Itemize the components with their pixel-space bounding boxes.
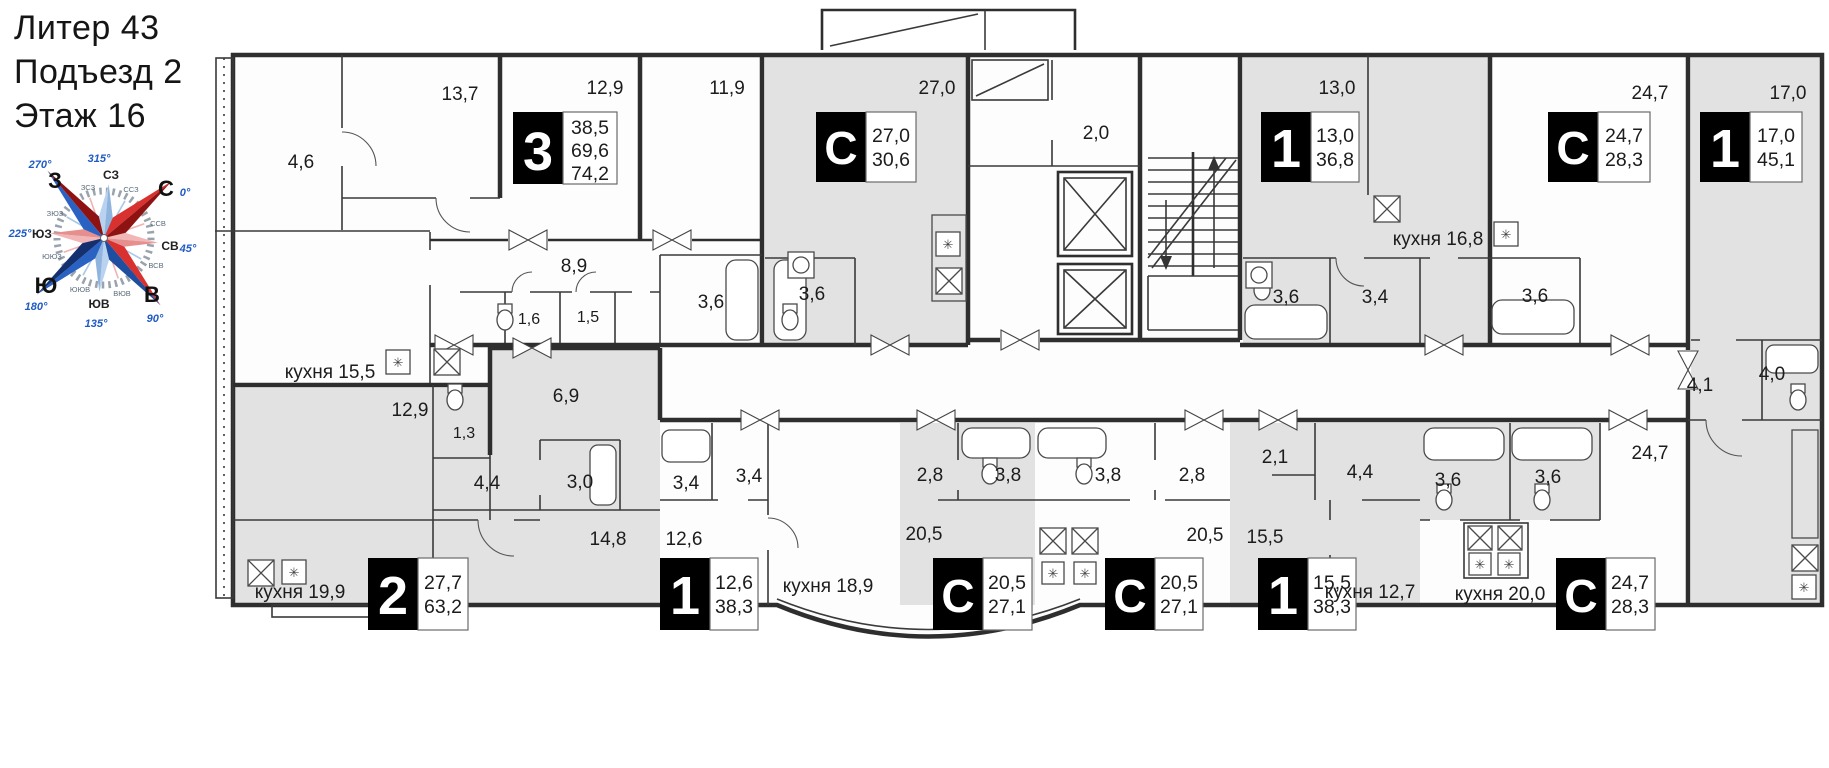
room-label: 2,0	[1083, 123, 1109, 144]
svg-text:✳: ✳	[1080, 566, 1091, 581]
svg-text:24,7: 24,7	[1605, 125, 1643, 147]
apartment-badge-studio2: С 24,7 28,3	[1548, 112, 1650, 182]
compass-nnw: ССЗ	[123, 185, 139, 194]
room-label: 3,6	[698, 292, 724, 313]
room-label: 4,0	[1759, 364, 1785, 385]
svg-text:17,0: 17,0	[1757, 125, 1795, 147]
apartment-badge-1room-bl: 1 12,6 38,3	[660, 558, 758, 630]
svg-text:27,1: 27,1	[988, 596, 1026, 618]
room-label: 14,8	[590, 529, 627, 550]
room-label: 4,4	[474, 473, 501, 494]
room-label: 4,6	[288, 152, 314, 173]
compass-nw-label: СЗ	[103, 168, 119, 182]
compass-south-label: Ю	[35, 273, 58, 298]
svg-text:45,1: 45,1	[1757, 149, 1795, 171]
svg-text:36,8: 36,8	[1316, 149, 1354, 171]
room-label: 2,1	[1262, 447, 1288, 468]
svg-text:1: 1	[1271, 119, 1301, 179]
svg-text:1: 1	[1268, 566, 1298, 626]
apartment-badge-3room: 3 38,5 69,6 74,2	[513, 112, 617, 185]
room-label: 3,6	[1522, 286, 1548, 307]
room-label: 3,6	[1535, 467, 1561, 488]
compass-deg135: 135°	[85, 318, 108, 330]
room-label: 12,9	[587, 78, 624, 99]
svg-text:2: 2	[378, 566, 408, 626]
svg-text:1: 1	[670, 566, 700, 626]
svg-text:28,3: 28,3	[1605, 149, 1643, 171]
svg-text:С: С	[1556, 122, 1589, 174]
svg-text:С: С	[1564, 570, 1597, 622]
svg-text:27,0: 27,0	[872, 125, 910, 147]
compass-deg225: 225°	[8, 228, 32, 240]
svg-text:✳: ✳	[289, 565, 300, 580]
compass-deg180: 180°	[25, 301, 48, 313]
svg-text:✳: ✳	[1475, 557, 1486, 572]
svg-text:38,5: 38,5	[571, 117, 609, 139]
room-label: кухня 12,7	[1325, 582, 1416, 603]
room-label: 3,8	[995, 465, 1021, 486]
svg-text:20,5: 20,5	[1160, 572, 1198, 594]
svg-text:С: С	[1113, 570, 1146, 622]
room-label: 8,9	[561, 256, 587, 277]
room-label: 1,3	[453, 425, 475, 442]
svg-text:63,2: 63,2	[424, 596, 462, 618]
room-label: 24,7	[1632, 83, 1669, 104]
room-label: 3,6	[1435, 470, 1461, 491]
room-label: 1,5	[577, 309, 599, 326]
floor-plan-page: Литер 43 Подъезд 2 Этаж 16	[0, 0, 1829, 768]
room-label: 3,6	[799, 284, 825, 305]
room-label: 3,4	[673, 473, 700, 494]
room-label: 2,8	[917, 465, 943, 486]
room-label: 11,9	[709, 78, 745, 99]
compass-ene: ВСВ	[148, 261, 163, 270]
svg-text:12,6: 12,6	[715, 572, 753, 594]
apartment-badge-1room-top: 1 13,0 36,8	[1261, 112, 1359, 182]
room-label: 12,9	[392, 400, 429, 421]
svg-text:1: 1	[1710, 119, 1740, 179]
svg-text:✳: ✳	[1501, 227, 1512, 242]
room-label: 13,0	[1319, 78, 1356, 99]
room-label: кухня 20,0	[1455, 584, 1546, 605]
svg-text:27,7: 27,7	[424, 572, 462, 594]
room-label: 13,7	[442, 84, 479, 105]
room-label: 17,0	[1770, 83, 1807, 104]
compass-sw-label: ЮЗ	[32, 227, 52, 241]
room-label: кухня 18,9	[783, 576, 874, 597]
compass-deg90: 90°	[147, 313, 164, 325]
compass-deg45: 45°	[179, 243, 197, 255]
compass-deg315: 315°	[88, 153, 111, 165]
floor-plan-drawing: С В Ю З СВ ЮВ ЮЗ СЗ 0° 45° 90° 135° 180°…	[0, 0, 1829, 768]
compass-se-label: ЮВ	[88, 297, 109, 311]
svg-text:27,1: 27,1	[1160, 596, 1198, 618]
svg-text:13,0: 13,0	[1316, 125, 1354, 147]
compass-nne: ССВ	[150, 219, 166, 228]
svg-text:С: С	[941, 570, 974, 622]
compass-west-label: З	[48, 168, 62, 193]
room-label: 3,4	[1362, 287, 1389, 308]
svg-text:24,7: 24,7	[1611, 572, 1649, 594]
room-label: 20,5	[1187, 525, 1224, 546]
svg-text:✳: ✳	[943, 237, 954, 252]
room-label: 2,8	[1179, 465, 1205, 486]
room-label: кухня 16,8	[1393, 229, 1484, 250]
compass-east-label: В	[144, 282, 160, 307]
svg-text:74,2: 74,2	[571, 163, 609, 185]
compass-sse: ЮЮВ	[70, 285, 90, 294]
apartment-badge-studio4: С 20,5 27,1	[1105, 558, 1203, 630]
room-label: 4,1	[1687, 375, 1713, 396]
room-label: 27,0	[919, 78, 956, 99]
room-label: 12,6	[666, 529, 703, 550]
svg-text:С: С	[824, 122, 857, 174]
compass-deg270: 270°	[28, 159, 52, 171]
apartment-badge-1room-right: 1 17,0 45,1	[1700, 112, 1802, 182]
room-label: 6,9	[553, 386, 579, 407]
room-label: 3,8	[1095, 465, 1121, 486]
svg-text:38,3: 38,3	[715, 596, 753, 618]
svg-text:✳: ✳	[1504, 557, 1515, 572]
svg-text:✳: ✳	[1048, 566, 1059, 581]
svg-text:28,3: 28,3	[1611, 596, 1649, 618]
apartment-badge-studio3: С 20,5 27,1	[933, 558, 1032, 630]
room-label: 3,4	[736, 466, 763, 487]
room-label: 3,6	[1273, 287, 1299, 308]
room-label: 3,0	[567, 472, 593, 493]
room-label: 1,6	[518, 311, 540, 328]
svg-text:✳: ✳	[1799, 580, 1810, 595]
room-label: кухня 19,9	[255, 582, 346, 603]
svg-text:69,6: 69,6	[571, 140, 609, 162]
svg-text:✳: ✳	[393, 355, 404, 370]
compass-rose-icon: С В Ю З СВ ЮВ ЮЗ СЗ 0° 45° 90° 135° 180°…	[0, 114, 228, 362]
apartment-badge-studio1: С 27,0 30,6	[816, 112, 916, 182]
compass-north-label: С	[158, 176, 174, 201]
room-label: 20,5	[906, 524, 943, 545]
svg-text:30,6: 30,6	[872, 149, 910, 171]
compass-ssw: ЮЮЗ	[42, 252, 62, 261]
apartment-badge-2room: 2 27,7 63,2	[368, 558, 468, 630]
svg-text:3: 3	[523, 122, 553, 182]
compass-ese: ВЮВ	[113, 289, 131, 298]
compass-ne-label: СВ	[161, 239, 179, 253]
room-label: 24,7	[1632, 443, 1669, 464]
svg-text:20,5: 20,5	[988, 572, 1026, 594]
compass-wnw: ЗСЗ	[81, 183, 96, 192]
room-label: 15,5	[1247, 527, 1284, 548]
compass-deg0: 0°	[180, 187, 191, 199]
room-label: кухня 15,5	[285, 362, 376, 383]
apartment-badge-studio5: С 24,7 28,3	[1556, 558, 1655, 630]
compass-wsw: ЗЮЗ	[47, 209, 64, 218]
room-label: 4,4	[1347, 462, 1374, 483]
